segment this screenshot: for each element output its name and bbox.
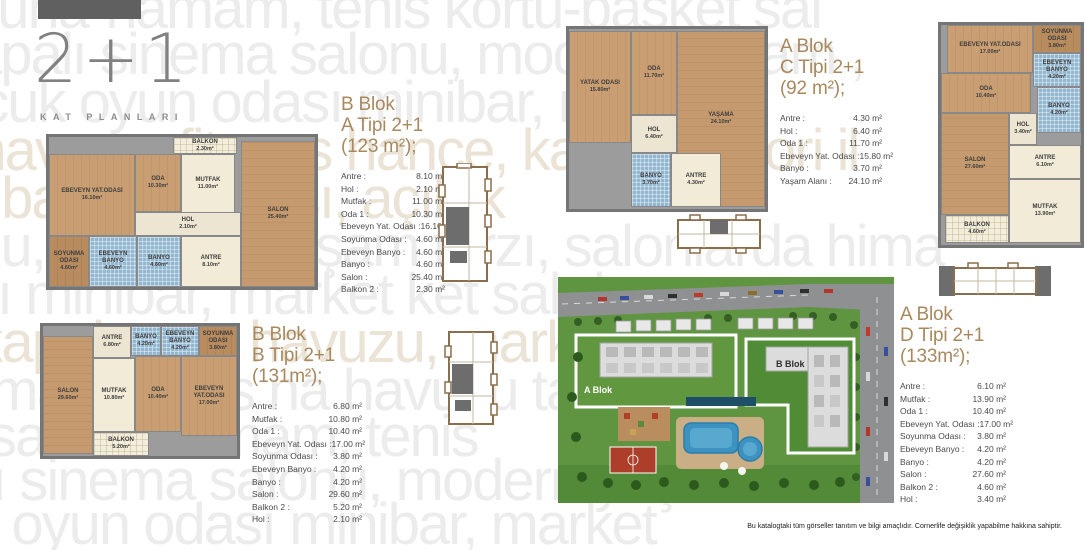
area-value: 24.10 m² <box>848 175 882 188</box>
room-area: 4.20m² <box>137 341 154 348</box>
room-name: SOYUNMA ODASI <box>50 251 88 265</box>
room-area: 3.70m² <box>642 180 659 187</box>
unit-block: A Blok <box>900 304 1006 325</box>
area-label: Antre : <box>341 170 366 183</box>
brand-logo-block <box>38 0 141 19</box>
room-mutfak: MUTFAK11.00m² <box>181 154 235 214</box>
unit-type: D Tipi 2+1 (133m²); <box>900 325 1006 367</box>
site-umbrella <box>738 467 746 475</box>
area-value: 6.40 m² <box>853 125 882 138</box>
area-label: Soyunma Odası : <box>341 233 407 246</box>
room-ebeveyn-yatak: EBEVEYN YAT.ODASI16.10m² <box>49 154 135 236</box>
area-value: 29.60 m² <box>328 488 362 501</box>
area-table: Antre :6.10 m² Mutfak :13.90 m² Oda 1 :1… <box>900 380 1006 506</box>
area-label: Ebeveyn Yat. Odası : <box>900 418 980 431</box>
disclaimer-text: Bu katalogtaki tüm görseller tanıtım ve … <box>747 523 1062 530</box>
room-name: SALON <box>965 157 986 164</box>
room-banyo: BANYO4.20m² <box>131 326 161 356</box>
area-value: 2.10 m² <box>333 513 362 526</box>
area-label: Ebeveyn Banyo : <box>341 246 405 259</box>
area-label: Balkon 2 : <box>252 501 290 514</box>
area-value: 6.80 m² <box>333 400 362 413</box>
site-label-b-blok: B Blok <box>776 359 805 369</box>
room-hol: HOL6.40m² <box>631 115 677 153</box>
area-value: 11.70 m² <box>849 137 882 150</box>
room-balkon: BALKON5.20m² <box>93 432 149 456</box>
room-area: 4.20m² <box>171 345 188 352</box>
unit-block: B Blok <box>252 324 362 345</box>
key-plan-a-tipi <box>437 163 493 285</box>
area-row: Salon :29.60 m² <box>252 488 362 501</box>
room-ebeveyn-banyo: EBEVEYN BANYO4.20m² <box>161 326 199 356</box>
area-row: Oda 1 :10.40 m² <box>900 405 1006 418</box>
area-label: Oda 1 : <box>900 405 928 418</box>
room-ebeveyn-yatak: EBEVEYN YAT.ODASI17.00m² <box>181 356 237 436</box>
room-area: 5.20m² <box>112 444 129 451</box>
area-label: Balkon 2 : <box>900 481 938 494</box>
room-antre: ANTRE4.30m² <box>671 153 721 207</box>
area-row: Banyo :4.60 m² <box>341 258 445 271</box>
unit-card-b-blok-b-tipi: B Blok B Tipi 2+1 (131m²); Antre :6.80 m… <box>252 324 362 526</box>
room-area: 11.70m² <box>644 73 664 80</box>
area-row: Antre :6.80 m² <box>252 400 362 413</box>
room-hol: HOL2.10m² <box>135 212 241 236</box>
area-row: Ebeveyn Banyo :4.20 m² <box>900 443 1006 456</box>
area-row: Hol :3.40 m² <box>900 493 1006 506</box>
area-row: Oda 1 :11.70 m² <box>780 137 882 150</box>
area-row: Balkon 2 :4.60 m² <box>900 481 1006 494</box>
area-label: Banyo : <box>900 456 929 469</box>
area-label: Banyo : <box>780 162 809 175</box>
area-row: Ebeveyn Yat. Odası :15.80 m² <box>780 150 882 163</box>
site-building-a <box>600 343 712 377</box>
area-label: Antre : <box>780 112 805 125</box>
area-value: 17.00 m² <box>332 438 366 451</box>
area-label: Soyunma Odası : <box>252 450 318 463</box>
room-antre: ANTRE6.80m² <box>93 326 131 358</box>
area-label: Oda 1 : <box>780 137 808 150</box>
room-name: SOYUNMA ODASI <box>200 331 236 345</box>
key-plan-unit-marker <box>710 220 728 234</box>
area-row: Hol :2.10 m² <box>341 183 445 196</box>
room-name: BALKON <box>108 437 134 444</box>
room-area: 4.60m² <box>60 265 77 272</box>
area-row: Hol :6.40 m² <box>780 125 882 138</box>
area-label: Salon : <box>252 488 278 501</box>
room-name: ODA <box>151 387 164 394</box>
room-area: 16.10m² <box>82 195 103 202</box>
room-name: ANTRE <box>686 173 707 180</box>
room-area: 6.40m² <box>645 134 662 141</box>
area-label: Banyo : <box>252 476 281 489</box>
room-soyunma: SOYUNMA ODASI3.80m² <box>199 326 237 356</box>
area-row: Salon :25.40 m² <box>341 271 445 284</box>
room-area: 10.30m² <box>148 183 169 190</box>
room-area: 29.60m² <box>58 395 79 402</box>
unit-card-a-blok-d-tipi: A Blok D Tipi 2+1 (133m²); Antre :6.10 m… <box>900 304 1006 506</box>
room-banyo: BANYO4.20m² <box>1037 87 1081 133</box>
room-banyo: BANYO3.70m² <box>631 153 671 207</box>
room-name: EBEVEYN YAT.ODASI <box>959 42 1020 49</box>
area-label: Oda 1 : <box>252 425 280 438</box>
floor-plan-c-tipi: YATAK ODASI15.80m² ODA11.70m² YAŞAMA24.1… <box>566 26 768 212</box>
area-label: Hol : <box>900 493 917 506</box>
room-area: 2.10m² <box>179 224 196 231</box>
room-salon: SALON25.40m² <box>241 141 315 287</box>
area-value: 5.20 m² <box>333 501 362 514</box>
room-name: EBEVEYN BANYO <box>90 251 136 265</box>
area-row: Soyunma Odası :4.60 m² <box>341 233 445 246</box>
unit-type: B Tipi 2+1 (131m²); <box>252 345 362 387</box>
room-name: ODA <box>647 66 660 73</box>
floor-plan-a-tipi: BALKON2.30m² EBEVEYN YAT.ODASI16.10m² OD… <box>46 134 318 290</box>
room-hol: HOL3.40m² <box>1009 113 1037 145</box>
room-area: 4.60m² <box>968 229 985 236</box>
area-row: Ebeveyn Yat. Odası :16.10 m² <box>341 220 445 233</box>
area-value: 15.80 m² <box>860 150 894 163</box>
room-name: ODA <box>151 176 164 183</box>
room-area: 3.40m² <box>1014 129 1031 136</box>
area-label: Oda 1 : <box>341 208 369 221</box>
area-value: 2.30 m² <box>416 283 445 296</box>
room-oda: ODA10.40m² <box>941 73 1031 113</box>
area-value: 13.90 m² <box>972 393 1006 406</box>
area-row: Oda 1 :10.40 m² <box>252 425 362 438</box>
area-row: Mutfak :13.90 m² <box>900 393 1006 406</box>
area-label: Ebeveyn Banyo : <box>900 443 964 456</box>
room-banyo: BANYO4.60m² <box>137 236 181 287</box>
area-row: Ebeveyn Banyo :4.20 m² <box>252 463 362 476</box>
area-value: 6.10 m² <box>977 380 1006 393</box>
unit-card-b-blok-a-tipi: B Blok A Tipi 2+1 (123 m²); Antre :8.10 … <box>341 94 445 296</box>
area-label: Ebeveyn Yat. Odası : <box>780 150 860 163</box>
area-row: Antre :4.30 m² <box>780 112 882 125</box>
key-plan-b-tipi <box>443 330 499 428</box>
room-name: ODA <box>979 86 992 93</box>
unit-card-a-blok-c-tipi: A Blok C Tipi 2+1 (92 m²); Antre :4.30 m… <box>780 36 882 188</box>
room-name: YAŞAMA <box>708 112 733 119</box>
area-table: Antre :8.10 m² Hol :2.10 m² Mutfak :11.0… <box>341 170 445 296</box>
room-area: 4.20m² <box>1050 110 1067 117</box>
site-lap-pool <box>686 397 756 406</box>
area-row: Soyunma Odası :3.80 m² <box>900 430 1006 443</box>
key-plan-c-tipi <box>670 214 768 254</box>
area-value: 4.30 m² <box>853 112 882 125</box>
area-value: 4.60 m² <box>977 481 1006 494</box>
area-value: 4.20 m² <box>977 443 1006 456</box>
room-area: 4.60m² <box>150 262 167 269</box>
room-name: EBEVEYN BANYO <box>162 331 198 345</box>
key-plan-unit-marker <box>939 266 955 296</box>
area-label: Salon : <box>341 271 367 284</box>
room-area: 4.20m² <box>1048 74 1065 81</box>
area-row: Mutfak :11.00 m² <box>341 195 445 208</box>
room-name: YATAK ODASI <box>580 80 620 87</box>
area-value: 10.40 m² <box>328 425 362 438</box>
room-area: 11.00m² <box>198 184 218 191</box>
room-name: BANYO <box>640 173 662 180</box>
area-value: 3.70 m² <box>853 162 882 175</box>
area-value: 17.00 m² <box>980 418 1014 431</box>
room-antre: ANTRE8.10m² <box>181 236 241 287</box>
area-value: 10.40 m² <box>972 405 1006 418</box>
room-name: BALKON <box>964 222 990 229</box>
area-value: 27.60 m² <box>972 468 1006 481</box>
room-name: ANTRE <box>1035 155 1056 162</box>
room-area: 4.30m² <box>687 180 704 187</box>
key-plan-unit-marker <box>1035 266 1051 296</box>
area-value: 4.20 m² <box>333 476 362 489</box>
area-row: Ebeveyn Yat. Odası :17.00 m² <box>252 438 362 451</box>
room-salon: SALON29.60m² <box>43 336 93 454</box>
room-yatak-odasi: YATAK ODASI15.80m² <box>569 31 631 143</box>
area-value: 3.80 m² <box>977 430 1006 443</box>
room-name: SALON <box>268 207 289 214</box>
area-label: Hol : <box>780 125 797 138</box>
area-row: Antre :6.10 m² <box>900 380 1006 393</box>
area-label: Mutfak : <box>900 393 930 406</box>
floor-plan-d-tipi: EBEVEYN YAT.ODASI17.00m² SOYUNMA ODASI3.… <box>938 22 1084 248</box>
site-plan-aerial: A Blok B Blok <box>558 277 894 503</box>
area-row: Banyo :3.70 m² <box>780 162 882 175</box>
room-area: 10.80m² <box>104 395 125 402</box>
room-area: 15.80m² <box>590 87 611 94</box>
area-row: Banyo :4.20 m² <box>252 476 362 489</box>
area-label: Mutfak : <box>341 195 371 208</box>
area-label: Antre : <box>252 400 277 413</box>
area-row: Ebeveyn Banyo :4.60 m² <box>341 246 445 259</box>
room-area: 17.00m² <box>199 400 220 407</box>
room-oda: ODA10.30m² <box>135 154 181 212</box>
room-area: 27.60m² <box>965 164 986 171</box>
room-name: ANTRE <box>201 255 222 262</box>
area-value: 4.20 m² <box>333 463 362 476</box>
room-name: SOYUNMA ODASI <box>1034 29 1080 43</box>
room-area: 6.10m² <box>1036 162 1053 169</box>
room-name: EBEVEYN YAT.ODASI <box>61 188 122 195</box>
area-row: Antre :8.10 m² <box>341 170 445 183</box>
room-area: 3.80m² <box>209 345 226 352</box>
room-area: 6.80m² <box>103 342 120 349</box>
area-label: Hol : <box>252 513 269 526</box>
room-name: ANTRE <box>102 335 123 342</box>
room-salon: SALON27.60m² <box>941 113 1009 215</box>
room-name: HOL <box>182 217 195 224</box>
area-table: Antre :6.80 m² Mutfak :10.80 m² Oda 1 :1… <box>252 400 362 526</box>
unit-type: C Tipi 2+1 (92 m²); <box>780 57 882 99</box>
area-label: Salon : <box>900 468 926 481</box>
floor-plan-b-tipi: SALON29.60m² ANTRE6.80m² BANYO4.20m² EBE… <box>40 323 240 459</box>
area-table: Antre :4.30 m² Hol :6.40 m² Oda 1 :11.70… <box>780 112 882 188</box>
room-name: MUTFAK <box>1033 204 1058 211</box>
area-label: Mutfak : <box>252 413 282 426</box>
room-name: HOL <box>1017 122 1030 129</box>
room-balkon: BALKON2.30m² <box>173 137 237 154</box>
area-row: Yaşam Alanı :24.10 m² <box>780 175 882 188</box>
area-row: Soyunma Odası :3.80 m² <box>252 450 362 463</box>
area-row: Oda 1 :10.30 m² <box>341 208 445 221</box>
room-oda: ODA10.40m² <box>135 356 181 432</box>
room-area: 24.10m² <box>711 119 732 126</box>
room-oda: ODA11.70m² <box>631 31 677 115</box>
room-name: EBEVEYN YAT.ODASI <box>182 386 236 400</box>
unit-type: A Tipi 2+1 (123 m²); <box>341 115 445 157</box>
room-mutfak: MUTFAK13.90m² <box>1009 179 1081 243</box>
area-label: Ebeveyn Banyo : <box>252 463 316 476</box>
room-ebeveyn-yatak: EBEVEYN YAT.ODASI17.00m² <box>947 25 1033 73</box>
area-label: Balkon 2 : <box>341 283 379 296</box>
area-label: Antre : <box>900 380 925 393</box>
area-value: 3.40 m² <box>977 493 1006 506</box>
area-label: Ebeveyn Yat. Odası : <box>341 220 421 233</box>
area-row: Mutfak :10.80 m² <box>252 413 362 426</box>
area-row: Banyo :4.20 m² <box>900 456 1006 469</box>
room-soyunma: SOYUNMA ODASI3.80m² <box>1033 25 1081 53</box>
room-area: 3.80m² <box>1048 43 1065 50</box>
area-value: 4.20 m² <box>977 456 1006 469</box>
area-label: Yaşam Alanı : <box>780 175 832 188</box>
area-label: Hol : <box>341 183 358 196</box>
unit-block: B Blok <box>341 94 445 115</box>
page-subtitle: KAT PLANLARI <box>40 112 184 122</box>
area-row: Salon :27.60 m² <box>900 468 1006 481</box>
room-area: 8.10m² <box>202 262 219 269</box>
room-name: MUTFAK <box>102 388 127 395</box>
site-label-a-blok: A Blok <box>584 385 613 395</box>
area-row: Balkon 2 :5.20 m² <box>252 501 362 514</box>
room-area: 17.00m² <box>980 49 1001 56</box>
room-ebeveyn-banyo: EBEVEYN BANYO4.60m² <box>89 236 137 287</box>
key-plan-unit-marker <box>446 207 469 245</box>
room-balkon: BALKON4.60m² <box>945 215 1009 243</box>
room-name: HOL <box>648 127 661 134</box>
key-plan-unit-marker <box>452 364 473 394</box>
room-soyunma: SOYUNMA ODASI4.60m² <box>49 236 89 287</box>
catalog-page: sauna-hamam, tenis kortu-basket sal apal… <box>0 0 1086 550</box>
room-ebeveyn-banyo: EBEVEYN BANYO4.20m² <box>1033 53 1081 87</box>
room-area: 4.60m² <box>104 265 121 272</box>
room-mutfak: MUTFAK10.80m² <box>93 358 135 432</box>
room-name: SALON <box>58 388 79 395</box>
room-name: BALKON <box>192 139 218 146</box>
room-area: 2.30m² <box>196 146 213 153</box>
key-plan-d-tipi <box>938 260 1052 302</box>
area-label: Soyunma Odası : <box>900 430 966 443</box>
room-area: 25.40m² <box>268 214 289 221</box>
room-name: BANYO <box>148 255 170 262</box>
room-area: 10.40m² <box>148 394 169 401</box>
area-row: Hol :2.10 m² <box>252 513 362 526</box>
room-name: BANYO <box>1048 103 1070 110</box>
room-name: BANYO <box>135 334 157 341</box>
site-umbrella <box>720 462 728 470</box>
unit-block: A Blok <box>780 36 882 57</box>
page-title: 2+1 <box>34 24 193 96</box>
room-area: 13.90m² <box>1035 211 1056 218</box>
room-name: EBEVEYN BANYO <box>1034 60 1080 74</box>
area-row: Balkon 2 :2.30 m² <box>341 283 445 296</box>
area-value: 3.80 m² <box>333 450 362 463</box>
room-antre: ANTRE6.10m² <box>1009 145 1081 179</box>
area-label: Banyo : <box>341 258 370 271</box>
area-row: Ebeveyn Yat. Odası :17.00 m² <box>900 418 1006 431</box>
area-label: Ebeveyn Yat. Odası : <box>252 438 332 451</box>
room-name: MUTFAK <box>196 177 221 184</box>
area-value: 10.80 m² <box>328 413 362 426</box>
room-area: 10.40m² <box>976 93 997 100</box>
